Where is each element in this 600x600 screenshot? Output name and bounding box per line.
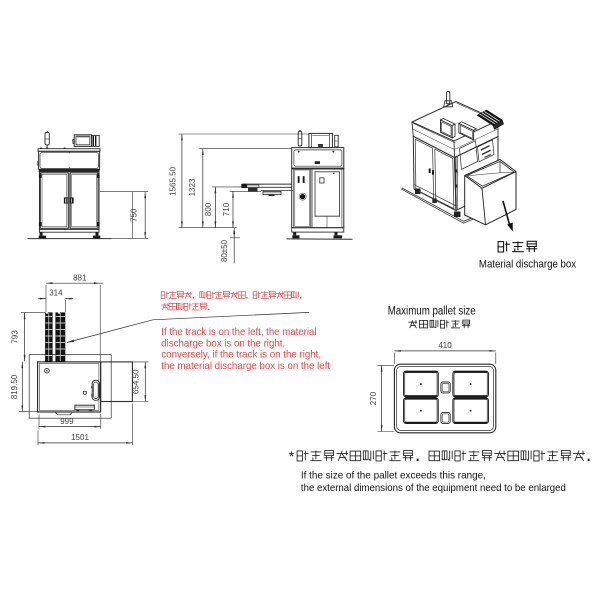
svg-text:the material discharge box is: the material discharge box is on the lef… (161, 361, 330, 372)
svg-text:Maximum pallet size: Maximum pallet size (388, 306, 476, 318)
svg-text:1565.50: 1565.50 (169, 166, 178, 195)
svg-text:793: 793 (10, 330, 19, 344)
svg-text:discharge box is on the right,: discharge box is on the right, (161, 338, 285, 349)
svg-text:Material discharge box: Material discharge box (479, 258, 577, 270)
svg-text:800: 800 (204, 202, 213, 216)
svg-text:750: 750 (130, 208, 139, 222)
svg-text:the external dimensions of the: the external dimensions of the equipment… (301, 483, 566, 494)
svg-text:881: 881 (73, 273, 87, 282)
svg-text:If the track is on the left, t: If the track is on the left, the materia… (161, 327, 316, 338)
svg-text:*: * (289, 448, 295, 464)
svg-text:410: 410 (438, 341, 452, 350)
svg-text:999: 999 (60, 417, 74, 426)
svg-text:654.50: 654.50 (132, 369, 141, 394)
svg-text:If the size of the pallet exce: If the size of the pallet exceeds this r… (301, 470, 486, 481)
svg-text:conversely, if the track is on: conversely, if the track is on the right… (161, 350, 321, 361)
svg-text:314: 314 (49, 289, 63, 298)
svg-text:819.50: 819.50 (10, 374, 19, 399)
svg-text:710: 710 (222, 202, 231, 216)
svg-text:270: 270 (369, 391, 378, 405)
svg-text:1323: 1323 (188, 178, 197, 196)
svg-text:1501: 1501 (71, 433, 89, 442)
svg-text:80±50: 80±50 (220, 239, 229, 262)
